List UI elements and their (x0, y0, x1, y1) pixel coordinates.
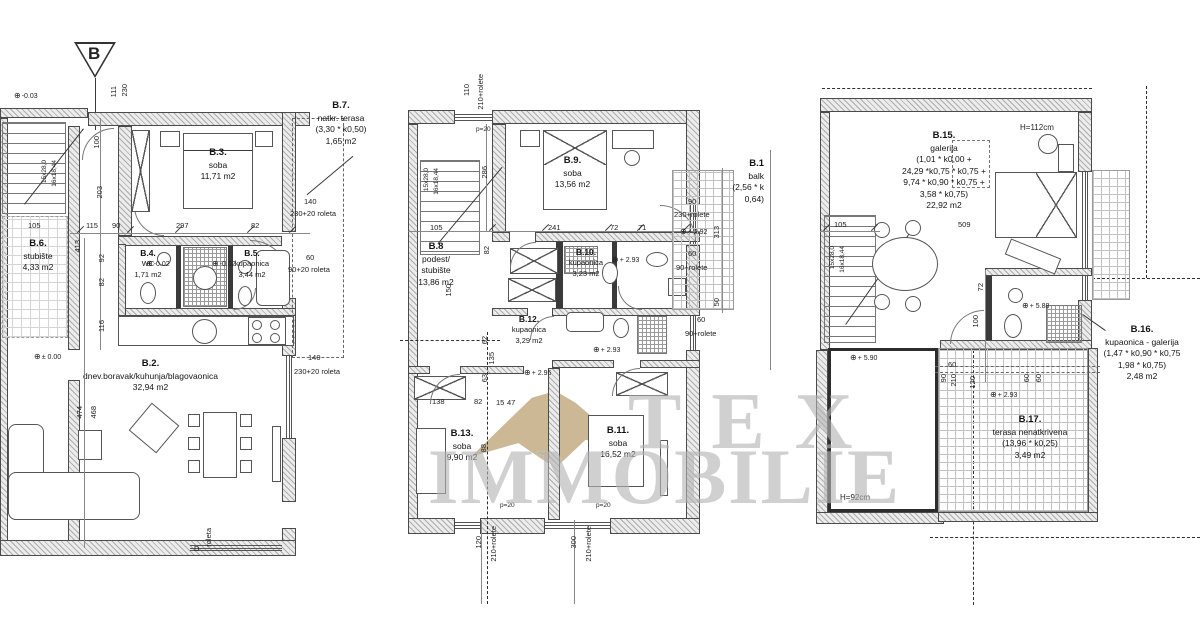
level-value: + 5.88 (1030, 303, 1050, 310)
level-value: + 2.93 (998, 392, 1018, 399)
stairs (824, 215, 876, 343)
chair (188, 437, 200, 450)
wall (118, 308, 296, 316)
wall (282, 438, 296, 502)
room-name: stubište (408, 265, 464, 276)
wall (1078, 112, 1092, 172)
wall (985, 268, 1092, 276)
dim-label: 138 (432, 398, 445, 406)
wall (816, 512, 944, 524)
room-area: 13,86 m2 (408, 277, 464, 288)
room-id: B.12. (500, 314, 558, 325)
floorplan-sheet: B 15x28,0 16x18,44 (0, 0, 1200, 627)
burner (270, 320, 280, 330)
room-name: terasa nenatkrivena (988, 427, 1072, 438)
room-label-b10: B.10. kupaonica 3,23 m2 (560, 247, 612, 279)
stair-note: 15x28,0 (424, 168, 431, 191)
room-area: 1,65 m2 (300, 136, 382, 147)
knee-wall-dash (935, 372, 1100, 373)
window-label: 90+rolete (676, 264, 707, 272)
dining-table (203, 412, 237, 478)
room-id: B.5. (222, 248, 282, 259)
room-id: B.6. (8, 238, 68, 251)
room-name: soba (178, 160, 258, 171)
room-label-b12: B.12. kupaonica 3,29 m2 (500, 314, 558, 346)
window-label: 60 (697, 316, 705, 324)
dim-label: 210 (950, 374, 958, 387)
chair (188, 460, 200, 473)
wall (820, 98, 1092, 112)
dim-label: 509 (958, 221, 971, 229)
stair-note: 15x28,0 (830, 246, 837, 269)
room-calc: (1,47 * k0,90 * k0,75 (1096, 348, 1188, 359)
wall (460, 366, 524, 374)
wall (68, 126, 80, 350)
window (455, 522, 480, 529)
dim-label: 60 (948, 361, 956, 369)
level-marker: ⊕+ 2.93 (593, 346, 620, 354)
room-calc: 24,29 *k0,75 * k0,75 + (898, 166, 990, 177)
window-label: 90+20 roleta (288, 266, 330, 274)
table (872, 237, 938, 291)
shower (1046, 305, 1082, 343)
dim-label: 150 (445, 284, 453, 297)
room-area: 3,23 m2 (560, 269, 612, 279)
toilet (1004, 314, 1022, 338)
level-marker: ⊕+ 2.92 (680, 228, 707, 236)
level-marker: ⊕-0.02 (146, 260, 170, 268)
window-label: 230+20 roleta (294, 368, 340, 376)
room-label-b9: B.9. soba 13,56 m2 (545, 155, 600, 191)
wall-note: p=20 (500, 503, 515, 510)
level-marker: ⊕+ 2.95 (524, 369, 551, 377)
wall (408, 518, 455, 534)
room-calc: (13,96 * k0,25) (988, 438, 1072, 449)
room-name: soba (594, 438, 642, 449)
window-label: 230+rolete (674, 211, 710, 219)
chair (624, 150, 640, 166)
dim-label: 71 (638, 224, 646, 232)
chair (905, 296, 921, 312)
stair-note: 15x28,0 (42, 160, 49, 183)
window-label: 60 (306, 254, 314, 262)
window-label: 90+rolete (685, 330, 716, 338)
dim-label: 230 (121, 84, 129, 97)
dim-label: 82 (98, 278, 106, 286)
wall (492, 124, 506, 232)
level-value: -0.02 (154, 261, 170, 268)
dim-label: 111 (110, 86, 118, 97)
dim-label: 115 (86, 222, 98, 230)
wall (492, 232, 510, 242)
dim-label: 413 (74, 240, 82, 253)
window (545, 522, 610, 529)
room-id: B.16. (1096, 324, 1188, 337)
level-marker: ⊕-0.03 (14, 92, 38, 100)
stair-note: 16x18,44 (840, 246, 847, 273)
room-calc: (1,01 * k0,00 + (898, 154, 990, 165)
level-marker: ⊕+ 2.93 (612, 256, 639, 264)
room-area: 9,90 m2 (438, 452, 486, 463)
wardrobe (508, 278, 556, 302)
wall-line (176, 246, 181, 308)
bathtub (566, 312, 604, 332)
room-calc: (2,56 * k (724, 182, 764, 193)
room-id: B.8 (408, 241, 464, 254)
kitchen-sink (192, 319, 217, 344)
room-area: 3,44 m2 (222, 270, 282, 280)
level-marker: ⊕+ 2.93 (990, 391, 1017, 399)
room-label-b3: B.3. soba 11,71 m2 (178, 147, 258, 183)
level-value: + 2.92 (688, 229, 708, 236)
sofa (8, 472, 140, 520)
desk (612, 130, 654, 149)
level-marker-icon: ⊕ (524, 368, 531, 377)
room-area: 11,71 m2 (178, 171, 258, 182)
roof-line (1146, 86, 1147, 278)
nightstand (520, 130, 540, 147)
level-value: + 2.95 (532, 370, 552, 377)
room-label-b2: B.2. dnev.boravak/kuhunja/blagovaonica 3… (63, 358, 238, 394)
dimension-line (574, 520, 575, 604)
room-label-b16: B.16. kupaonica - galerija (1,47 * k0,90… (1096, 324, 1188, 383)
window-label: roleta (205, 528, 213, 547)
room-name: dnev.boravak/kuhunja/blagovaonica (63, 371, 238, 382)
room-area: 3,49 m2 (988, 450, 1072, 461)
level-marker-icon: ⊕ (146, 259, 153, 268)
dim-label: 286 (481, 166, 489, 179)
dim-label: 100 (972, 315, 980, 328)
room-area: 16,52 m2 (594, 449, 642, 460)
level-marker-icon: ⊕ (593, 345, 600, 354)
dimension-line (722, 168, 723, 313)
dim-label: 105 (834, 221, 847, 229)
skylight (1092, 170, 1130, 300)
room-name: galerija (898, 143, 990, 154)
room-id: B.11. (594, 425, 642, 438)
room-label-b6: B.6. stubište 4,33 m2 (8, 238, 68, 274)
dim-label: 15 (496, 399, 504, 407)
room-area: 1,71 m2 (122, 270, 174, 280)
level-marker-icon: ⊕ (680, 227, 687, 236)
dim-label: 60 (1023, 374, 1031, 382)
dimension-line (481, 520, 482, 604)
room-name: natkr. terasa (300, 113, 382, 124)
chair (874, 294, 890, 310)
wall-line (985, 276, 992, 342)
tv-bench (272, 426, 281, 482)
sink (646, 252, 668, 267)
attic-room (828, 348, 938, 512)
level-marker-icon: ⊕ (990, 390, 997, 399)
wall (88, 112, 310, 126)
door-arc (618, 286, 642, 310)
level-marker: ⊕± 0.00 (34, 353, 61, 361)
dim-label: 468 (90, 406, 98, 419)
section-marker-label: B (88, 44, 100, 64)
room-calc: 9,74 * k0,90 * k0,75 + (898, 177, 990, 188)
burner (252, 333, 262, 343)
level-marker-icon: ⊕ (1022, 301, 1029, 310)
shaft-vent (193, 266, 217, 290)
wall (610, 518, 700, 534)
level-value: + 2.93 (601, 347, 621, 354)
dim-label: 47 (507, 399, 515, 407)
understair-area (2, 216, 68, 338)
chair (188, 414, 200, 427)
level-marker-icon: ⊕ (850, 353, 857, 362)
chair (240, 460, 252, 473)
room-label-b15: B.15. galerija (1,01 * k0,00 + 24,29 *k0… (898, 130, 990, 212)
level-marker: ⊕+ 5.88 (1022, 302, 1049, 310)
level-marker-icon: ⊕ (212, 259, 219, 268)
shower (637, 316, 667, 354)
room-area: 2,48 m2 (1096, 371, 1188, 382)
wall (552, 360, 614, 368)
room-id: B.3. (178, 147, 258, 160)
wall (408, 366, 430, 374)
dimension-line (84, 238, 85, 548)
level-value: -0.02 (220, 261, 236, 268)
room-id: B.7. (300, 100, 382, 113)
dimension-line (770, 150, 771, 370)
room-area: 32,94 m2 (63, 382, 238, 393)
window-label: 140 (308, 354, 321, 362)
room-name: kupaonica (500, 325, 558, 335)
nightstand (160, 131, 180, 147)
chair (905, 220, 921, 236)
room-id: B.15. (898, 130, 990, 143)
burner (252, 320, 262, 330)
dim-label: 203 (96, 186, 104, 199)
room-area: 22,92 m2 (898, 200, 990, 211)
dim-label: 82 (474, 398, 482, 406)
room-calc: (3,30 * k0,50) (300, 124, 382, 135)
dim-label: 88 (480, 444, 488, 452)
level-marker: ⊕+ 5.90 (850, 354, 877, 362)
level-marker-icon: ⊕ (612, 255, 619, 264)
room-area: 4,33 m2 (8, 262, 68, 273)
window-label: 90 (688, 198, 696, 206)
dim-label: 82 (483, 246, 491, 254)
window-label: D (194, 545, 199, 553)
room-label-b8: B.8 podest/ stubište 13,86 m2 (408, 241, 464, 288)
wall (118, 126, 132, 236)
level-marker-icon: ⊕ (14, 91, 21, 100)
room-name: soba (545, 168, 600, 179)
dim-label: 120 (969, 376, 977, 389)
wall (816, 350, 828, 522)
wall (686, 350, 700, 520)
window (286, 356, 292, 438)
dim-label: 92 (98, 254, 106, 262)
chair (240, 437, 252, 450)
knee-wall-dash (935, 366, 1100, 367)
side-table (78, 430, 102, 460)
dimension-line (985, 270, 986, 382)
wardrobe (131, 130, 150, 212)
dim-label: 135 (488, 352, 496, 365)
level-marker-icon: ⊕ (34, 352, 41, 361)
room-id: B.17. (988, 414, 1072, 427)
dim-label: 297 (176, 222, 189, 230)
room-area: 0,64) (724, 194, 764, 205)
wall (640, 360, 700, 368)
burner (270, 333, 280, 343)
wall-note: p=20 (476, 127, 491, 134)
dim-label: 72 (610, 224, 618, 232)
toilet (238, 286, 252, 306)
center-line (930, 537, 1200, 538)
terrace-outline (292, 118, 344, 358)
wall (0, 108, 88, 118)
dim-label: 100 (93, 136, 101, 149)
room-calc: 1,98 * k0,75) (1096, 360, 1188, 371)
room-area: 3,29 m2 (500, 336, 558, 346)
wall (408, 110, 455, 124)
center-line (487, 332, 488, 604)
chair (240, 414, 252, 427)
room-name: kupaonica (560, 258, 612, 268)
wall (492, 110, 700, 124)
toilet (140, 282, 156, 304)
room-name: stubište (8, 251, 68, 262)
dim-label: 72 (977, 283, 985, 291)
height-label: H=92cm (840, 494, 870, 502)
dim-label: 90 (940, 374, 948, 382)
dim-label: 210+rolete (490, 526, 498, 562)
level-value: ± 0.00 (42, 354, 61, 361)
dim-label: 82 (251, 222, 259, 230)
room-name: balk (724, 171, 764, 182)
nightstand (255, 131, 273, 147)
room-label-b7: B.7. natkr. terasa (3,30 * k0,50) 1,65 m… (300, 100, 382, 147)
dim-label: 110 (463, 84, 471, 96)
window-label: 60 (688, 250, 696, 258)
window-label: 140 (304, 198, 317, 206)
level-value: + 5.90 (858, 355, 878, 362)
height-label: H=112cm (1020, 124, 1054, 132)
stair-note: 16x18,44 (434, 168, 441, 195)
room-label-b14: B.1 balk (2,56 * k 0,64) (724, 158, 764, 205)
dim-label: 90 (112, 222, 120, 230)
dim-label: 313 (713, 226, 721, 239)
dim-label: 210+rolete (585, 526, 593, 562)
toilet (613, 318, 629, 338)
dim-label: 120 (475, 536, 483, 549)
dim-label: 241 (548, 224, 561, 232)
window (1082, 172, 1088, 300)
room-label-b11: B.11. soba 16,52 m2 (594, 425, 642, 461)
dim-label: 474 (76, 406, 84, 419)
dimension-line (70, 233, 310, 234)
mirror (1038, 134, 1058, 154)
room-id: B.1 (724, 158, 764, 171)
wall-note: p=20 (596, 503, 611, 510)
dim-label: 116 (98, 320, 106, 332)
dim-label: 300 (570, 536, 578, 549)
room-id: B.13. (438, 428, 486, 441)
room-id: B.9. (545, 155, 600, 168)
bed-canopy (1036, 173, 1076, 237)
dim-label: 105 (28, 222, 41, 230)
room-id: B.2. (63, 358, 238, 371)
room-id: B.10. (560, 247, 612, 258)
room-id: B.4. (122, 248, 174, 259)
room-name: podest/ (408, 254, 464, 265)
tv-bench (660, 440, 668, 496)
vanity (1058, 144, 1074, 172)
dim-label: 50 (713, 298, 721, 306)
stair-note: 16x18,44 (52, 160, 59, 187)
window-label: 230+20 roleta (290, 210, 336, 218)
room-area: 13,56 m2 (545, 179, 600, 190)
coffee-table (129, 403, 180, 454)
dimension-line (100, 118, 101, 350)
roof-line (822, 88, 1092, 89)
dim-label: 63 (481, 374, 489, 382)
dim-label: 210+rolete (477, 74, 485, 110)
sink (1008, 288, 1023, 303)
door-arc (510, 242, 536, 268)
window (455, 114, 492, 121)
level-value: -0.03 (22, 93, 38, 100)
level-value: + 2.93 (620, 257, 640, 264)
room-name: kupaonica - galerija (1096, 337, 1188, 348)
dim-label: 60 (1035, 374, 1043, 382)
room-calc: 3,58 * k0,75) (898, 189, 990, 200)
dim-label: 105 (430, 224, 443, 232)
level-marker: ⊕-0.02 (212, 260, 236, 268)
wall (548, 368, 560, 520)
dim-label: 62 (481, 336, 489, 344)
wall (938, 512, 1098, 522)
room-label-b17: B.17. terasa nenatkrivena (13,96 * k0,25… (988, 414, 1072, 461)
